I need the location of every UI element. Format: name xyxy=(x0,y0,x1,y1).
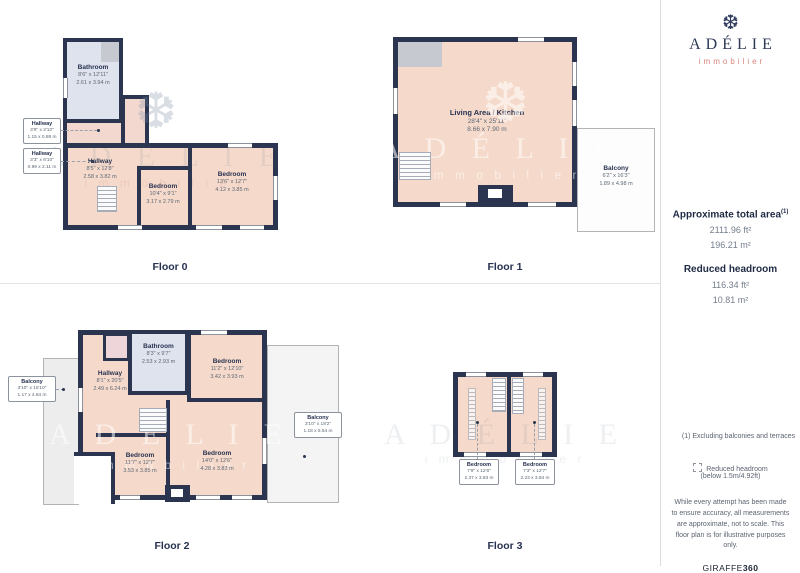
window-marker xyxy=(240,225,264,230)
callout-dot xyxy=(303,455,306,458)
legend-row: Reduced headroom xyxy=(661,463,800,473)
window-marker xyxy=(78,388,83,412)
room-label-living: Living Area / Kitchen 28'4" x 25'11" 8.6… xyxy=(438,108,536,135)
callout-connector xyxy=(61,161,91,162)
quadrant-divider xyxy=(0,283,660,284)
room-label-balcony: Balcony 6'2" x 16'3" 1.89 x 4.98 m xyxy=(577,165,655,188)
stairs-icon xyxy=(97,186,117,212)
chimney-flue xyxy=(171,489,183,497)
brand-logo: ❆ ADÉLIE immobilier xyxy=(661,13,800,66)
window-marker xyxy=(196,225,222,230)
floor2-chimney xyxy=(165,485,190,502)
disclaimer-text: While every attempt has been made to ens… xyxy=(661,498,800,552)
room-label-bedroom: Bedroom 11'2" x 12'10" 3.42 x 3.93 m xyxy=(189,358,265,381)
total-area-title: Approximate total area(1) xyxy=(661,209,800,220)
floor2-wc xyxy=(103,333,130,361)
room-label-bedroom: Bedroom 11'7" x 12'7" 3.53 x 3.85 m xyxy=(114,452,166,475)
room-label-bedroom: Bedroom 13'6" x 12'7" 4.12 x 3.85 m xyxy=(192,171,272,194)
floor1-entry xyxy=(398,42,442,67)
callout-connector xyxy=(61,130,97,131)
window-marker xyxy=(520,452,542,457)
legend-sub: (below 1.5m/4.92ft) xyxy=(661,473,800,480)
window-marker xyxy=(440,202,466,207)
callout-dot xyxy=(97,129,100,132)
window-marker xyxy=(201,330,227,335)
window-marker xyxy=(528,202,556,207)
total-area-ft: 2111.96 ft² xyxy=(661,225,800,235)
window-marker xyxy=(120,495,140,500)
stairs-icon xyxy=(139,408,167,432)
brand-subtitle: immobilier xyxy=(661,57,800,66)
callout-dot xyxy=(533,421,536,424)
info-sidebar: ❆ ADÉLIE immobilier Approximate total ar… xyxy=(660,0,800,566)
window-marker xyxy=(572,100,577,126)
callout-dot xyxy=(62,388,65,391)
callout-dot xyxy=(91,160,94,163)
room-label-bathroom: Bathroom 8'3" x 9'7" 2.53 x 2.93 m xyxy=(128,343,189,366)
floor0-vestibule xyxy=(121,95,149,149)
room-label-hallway: Hallway 8'1" x 20'5" 2.49 x 6.24 m xyxy=(80,370,140,393)
window-marker xyxy=(523,372,543,377)
interior-wall xyxy=(137,166,191,170)
total-area-section: Approximate total area(1) 2111.96 ft² 19… xyxy=(661,209,800,250)
giraffe360-logo: GIRAFFE360 xyxy=(661,563,800,573)
callout-connector xyxy=(534,424,535,460)
room-label-bathroom: Bathroom 8'6" x 12'11" 2.61 x 3.94 m xyxy=(65,64,121,87)
window-marker xyxy=(466,372,486,377)
callout-balcony: Balcony 3'10" x 15'10" 1.17 x 4.84 m xyxy=(8,376,56,402)
callout-dot xyxy=(476,421,479,424)
stairs-icon xyxy=(512,378,524,414)
disclaimer-section: While every attempt has been made to ens… xyxy=(661,498,800,573)
footnote: (1) Excluding balconies and terraces xyxy=(661,433,800,440)
snowflake-icon: ❆ xyxy=(661,13,800,33)
callout-connector xyxy=(477,424,478,460)
floor0-shower xyxy=(101,42,119,62)
window-marker xyxy=(228,143,252,148)
callout-balcony: Balcony 3'10" x 18'2" 1.18 x 5.54 m xyxy=(294,412,342,438)
floor-label-1: Floor 1 xyxy=(405,261,605,273)
floor2-notch xyxy=(74,452,115,504)
reduced-headroom-section: Reduced headroom 116.34 ft² 10.81 m² xyxy=(661,264,800,305)
window-marker xyxy=(393,88,398,114)
interior-wall xyxy=(96,433,170,437)
reduced-headroom-hatch xyxy=(538,388,546,440)
window-marker xyxy=(63,78,68,98)
chimney-flue xyxy=(488,189,502,198)
room-label-bedroom: Bedroom 14'0" x 12'6" 4.28 x 3.83 m xyxy=(174,450,260,473)
reduced-headroom-icon xyxy=(693,463,702,472)
interior-wall xyxy=(507,372,511,457)
headroom-m: 10.81 m² xyxy=(661,295,800,305)
plan-area: ❆ A D É L I E i m m o b i l i e r Bathro… xyxy=(0,0,660,566)
callout-hallway: Hallway 3'3" x 6'10" 0.99 x 2.11 m xyxy=(23,148,61,174)
brand-name: ADÉLIE xyxy=(661,36,800,54)
callout-hallway: Hallway 3'9" x 2'10" 1.15 x 0.88 m xyxy=(23,118,61,144)
floor-label-2: Floor 2 xyxy=(72,540,272,552)
callout-bedroom: Bedroom 7'3" x 12'7" 2.23 x 3.84 m xyxy=(515,459,555,485)
window-marker xyxy=(273,176,278,200)
window-marker xyxy=(572,62,577,86)
floor-label-3: Floor 3 xyxy=(405,540,605,552)
stairs-icon xyxy=(399,152,431,180)
floor-label-0: Floor 0 xyxy=(70,261,270,273)
floor1-chimney xyxy=(478,185,513,205)
callout-bedroom: Bedroom 7'9" x 12'6" 2.37 x 3.83 m xyxy=(459,459,499,485)
legend: Reduced headroom (below 1.5m/4.92ft) xyxy=(661,463,800,480)
stairs-icon xyxy=(492,378,506,412)
window-marker xyxy=(196,495,220,500)
total-area-m: 196.21 m² xyxy=(661,240,800,250)
reduced-headroom-hatch xyxy=(468,388,476,440)
footnote-marker: (1) xyxy=(781,209,788,215)
headroom-title: Reduced headroom xyxy=(661,264,800,275)
legend-label: Reduced headroom xyxy=(706,466,768,473)
window-marker xyxy=(518,37,544,42)
window-marker xyxy=(232,495,252,500)
window-marker xyxy=(262,438,267,464)
interior-wall xyxy=(187,398,267,402)
window-marker xyxy=(464,452,486,457)
window-marker xyxy=(118,225,142,230)
room-label-bedroom: Bedroom 10'4" x 9'1" 3.17 x 2.79 m xyxy=(136,183,190,206)
headroom-ft: 116.34 ft² xyxy=(661,280,800,290)
